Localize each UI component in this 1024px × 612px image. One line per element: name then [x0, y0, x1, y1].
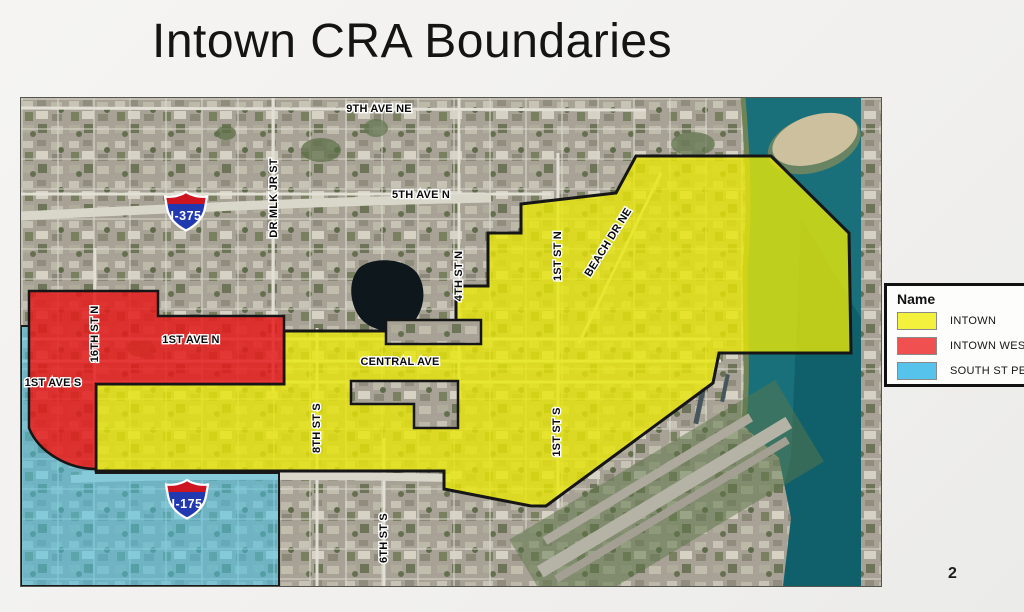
- cra-boundary-map: I-375 I-175 9TH AVE NE 5TH AVE N DR MLK …: [20, 97, 882, 587]
- shield-label-i375: I-375: [171, 209, 202, 223]
- street-label-dr-mlk-jr-st: DR MLK JR ST: [268, 158, 280, 237]
- legend-item-south-st-pete: SOUTH ST PETE: [897, 362, 1024, 380]
- street-label-8th-st-s: 8TH ST S: [311, 403, 323, 453]
- map-canvas: I-375 I-175 9TH AVE NE 5TH AVE N DR MLK …: [21, 98, 881, 586]
- legend-swatch-intown: [897, 312, 937, 330]
- shield-label-i175: I-175: [172, 497, 203, 511]
- legend-label-south-st-pete: SOUTH ST PETE: [950, 365, 1024, 377]
- legend-item-intown-west: INTOWN WEST: [897, 337, 1024, 355]
- street-label-1st-ave-s: 1ST AVE S: [25, 377, 82, 389]
- street-label-9th-ave-ne: 9TH AVE NE: [346, 103, 412, 115]
- legend-swatch-south-st-pete: [897, 362, 937, 380]
- page-number: 2: [948, 565, 957, 583]
- legend-title: Name: [897, 291, 1024, 307]
- legend-item-intown: INTOWN: [897, 312, 1024, 330]
- legend-panel: Name INTOWN INTOWN WEST SOUTH ST PETE: [884, 283, 1024, 387]
- legend-label-intown: INTOWN: [950, 315, 996, 327]
- street-label-6th-st-s: 6TH ST S: [378, 513, 390, 563]
- legend-label-intown-west: INTOWN WEST: [950, 340, 1024, 352]
- street-label-1st-st-s: 1ST ST S: [551, 407, 563, 456]
- slide-title: Intown CRA Boundaries: [152, 14, 672, 69]
- street-label-1st-st-n: 1ST ST N: [552, 231, 564, 281]
- street-label-16th-st-n: 16TH ST N: [89, 306, 101, 363]
- legend-swatch-intown-west: [897, 337, 937, 355]
- street-label-1st-ave-n: 1ST AVE N: [162, 334, 219, 346]
- street-label-5th-ave-n: 5TH AVE N: [392, 189, 450, 201]
- street-label-4th-st-n: 4TH ST N: [453, 251, 465, 302]
- street-label-central-ave: CENTRAL AVE: [360, 356, 439, 368]
